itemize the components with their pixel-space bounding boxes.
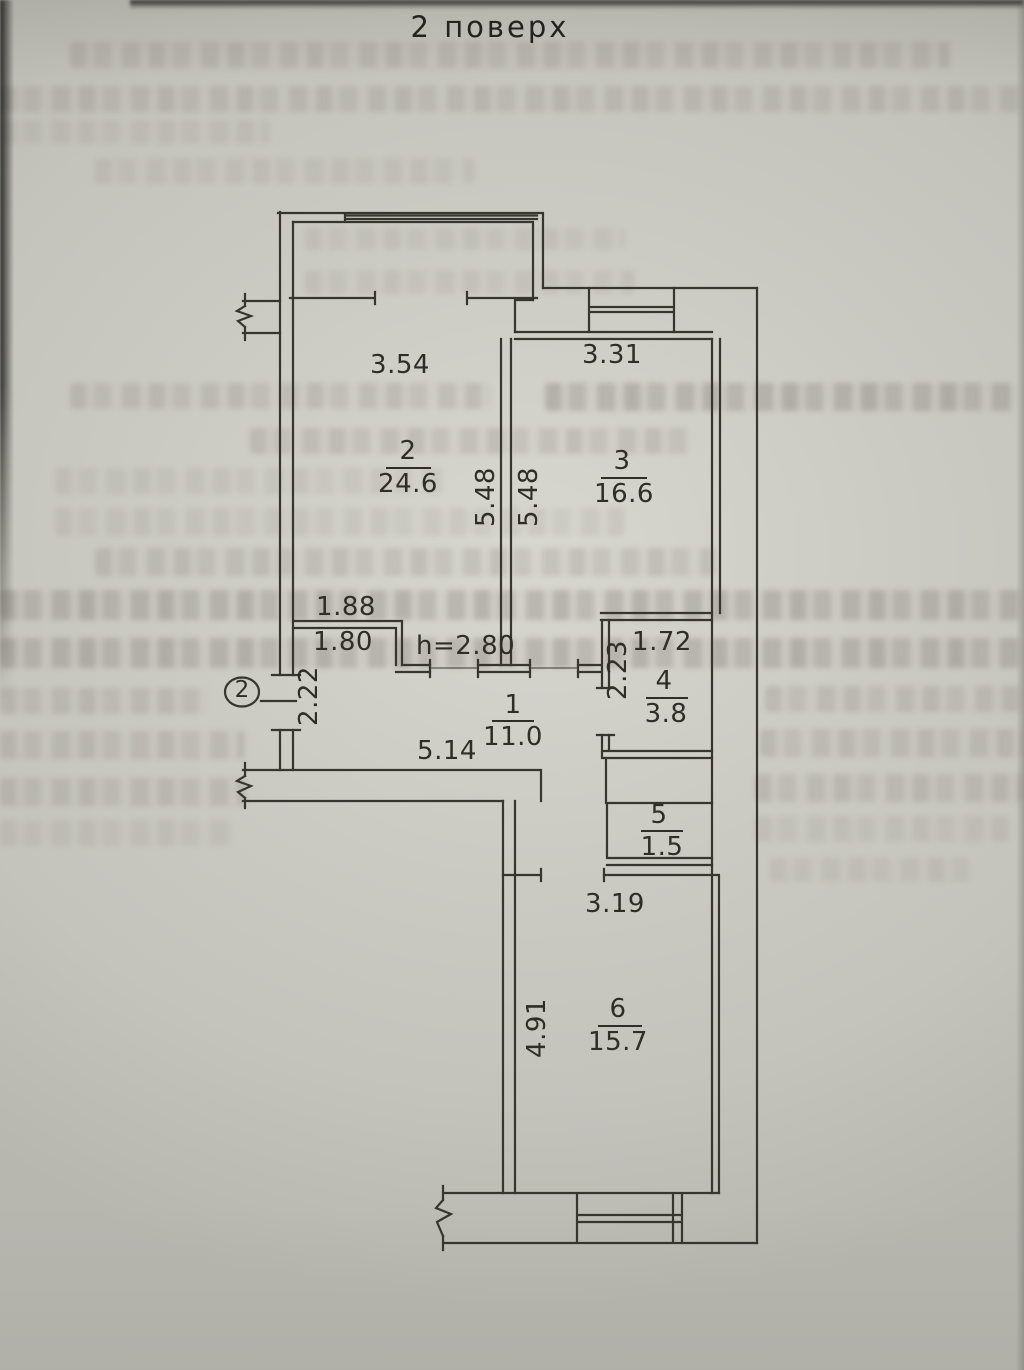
room-2-area: 24.6 xyxy=(372,469,444,499)
dim-2-23: 2.23 xyxy=(603,635,633,705)
wall-room6-left xyxy=(503,801,515,1193)
dim-height-2-80: h=2.80 xyxy=(416,631,512,661)
room-5-area: 1.5 xyxy=(634,832,690,862)
dim-2-22: 2.22 xyxy=(294,661,324,731)
room-2-number: 2 xyxy=(384,436,432,466)
room-4-area: 3.8 xyxy=(638,699,694,729)
wall-room3-bottom xyxy=(601,613,712,620)
break-zigzag-upper xyxy=(237,306,251,327)
dim-1-72: 1.72 xyxy=(626,627,698,657)
wall-room2-ledge xyxy=(290,292,537,332)
room-6-area: 15.7 xyxy=(584,1027,652,1057)
wall-right-inner xyxy=(712,339,720,1193)
room-3-number: 3 xyxy=(598,446,646,476)
dim-1-80: 1.80 xyxy=(307,627,379,657)
wall-left xyxy=(280,212,293,770)
dim-5-48-left: 5.48 xyxy=(471,462,501,532)
dim-3-31: 3.31 xyxy=(574,340,650,370)
wall-room6-bottom-window xyxy=(445,1193,757,1243)
floor-plan-drawing xyxy=(0,0,1024,1370)
photo-edge-right xyxy=(1016,0,1024,1370)
sheet-title: 2 поверх xyxy=(340,10,640,44)
room-5-number: 5 xyxy=(638,800,680,830)
photo-edge-top xyxy=(130,0,1024,9)
break-zigzag-lower xyxy=(237,776,251,798)
dim-1-88: 1.88 xyxy=(310,592,382,622)
dim-3-54: 3.54 xyxy=(362,350,438,380)
room-1-area: 11.0 xyxy=(480,722,546,752)
photo-edge-left xyxy=(0,0,14,700)
wall-room3-top xyxy=(515,332,712,339)
dim-3-19: 3.19 xyxy=(579,889,651,919)
dim-4-91: 4.91 xyxy=(522,991,552,1065)
room-6-number: 6 xyxy=(596,994,640,1024)
section-marker-number: 2 xyxy=(227,677,257,703)
room-1-number: 1 xyxy=(492,690,534,720)
wall-partition-2-3 xyxy=(501,339,511,665)
floor-plan-photo: 2 поверх 2 2 24.6 3 16.6 1 11.0 4 3.8 5 … xyxy=(0,0,1024,1370)
room-3-area: 16.6 xyxy=(588,479,660,509)
break-zigzag-bottom xyxy=(436,1200,451,1236)
wall-corridor-bottom xyxy=(243,770,541,801)
wall-room3-bay-window xyxy=(589,288,674,332)
room-4-number: 4 xyxy=(643,666,685,696)
dim-5-14: 5.14 xyxy=(411,736,483,766)
dim-5-48-right: 5.48 xyxy=(514,462,544,532)
wall-top-room2-window xyxy=(278,213,543,300)
